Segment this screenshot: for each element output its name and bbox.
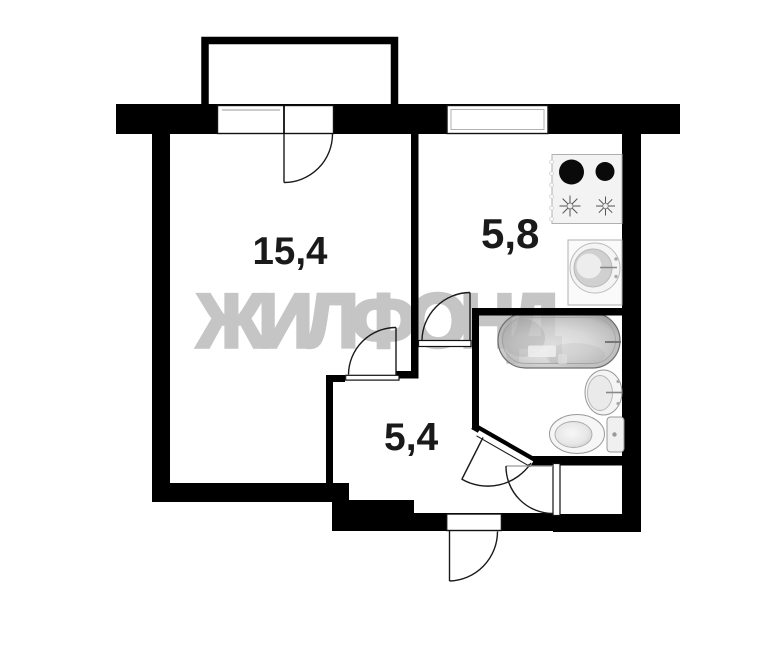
svg-text:5,8: 5,8 xyxy=(481,210,539,257)
svg-text:15,4: 15,4 xyxy=(253,230,329,273)
svg-text:5,4: 5,4 xyxy=(384,416,439,459)
